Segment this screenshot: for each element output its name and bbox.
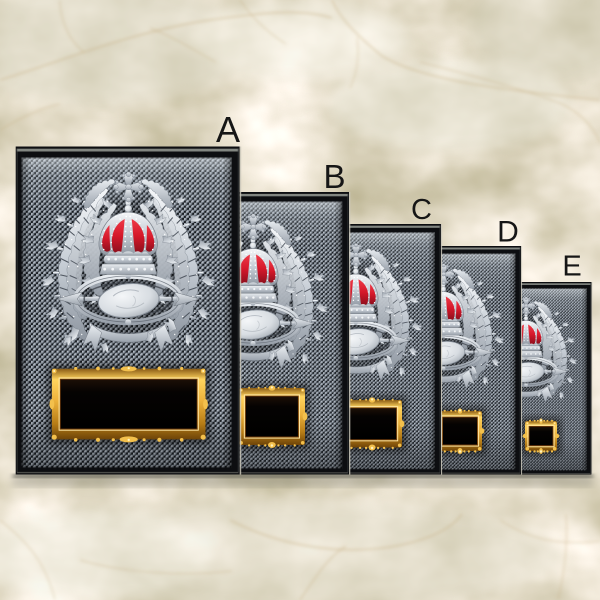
svg-text:B: B (323, 158, 345, 195)
svg-text:D: D (497, 216, 519, 249)
svg-text:A: A (216, 109, 240, 150)
svg-text:E: E (562, 251, 581, 283)
svg-text:C: C (411, 194, 432, 226)
